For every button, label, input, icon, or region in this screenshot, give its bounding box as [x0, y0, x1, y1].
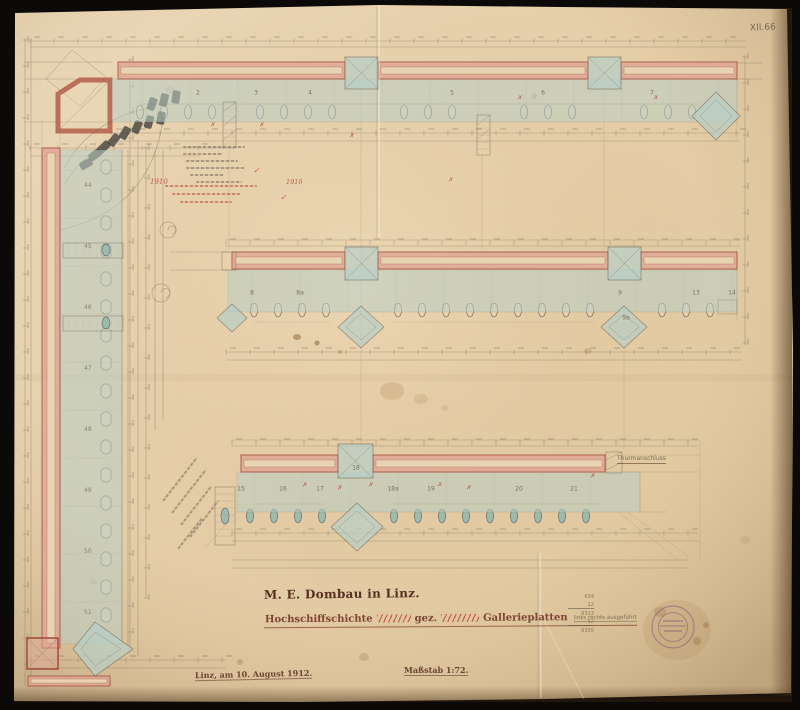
- paper-edge-shadow-right: [770, 8, 792, 696]
- lower-wall-red: [241, 455, 605, 472]
- left-gallery-band: [27, 148, 133, 686]
- top-wall-red: [118, 62, 737, 79]
- round-stamp: [652, 606, 694, 648]
- scanned-plan-sheet: [0, 0, 800, 710]
- middle-wall-red: [232, 252, 737, 269]
- paper-edge-shadow-bottom: [14, 686, 792, 702]
